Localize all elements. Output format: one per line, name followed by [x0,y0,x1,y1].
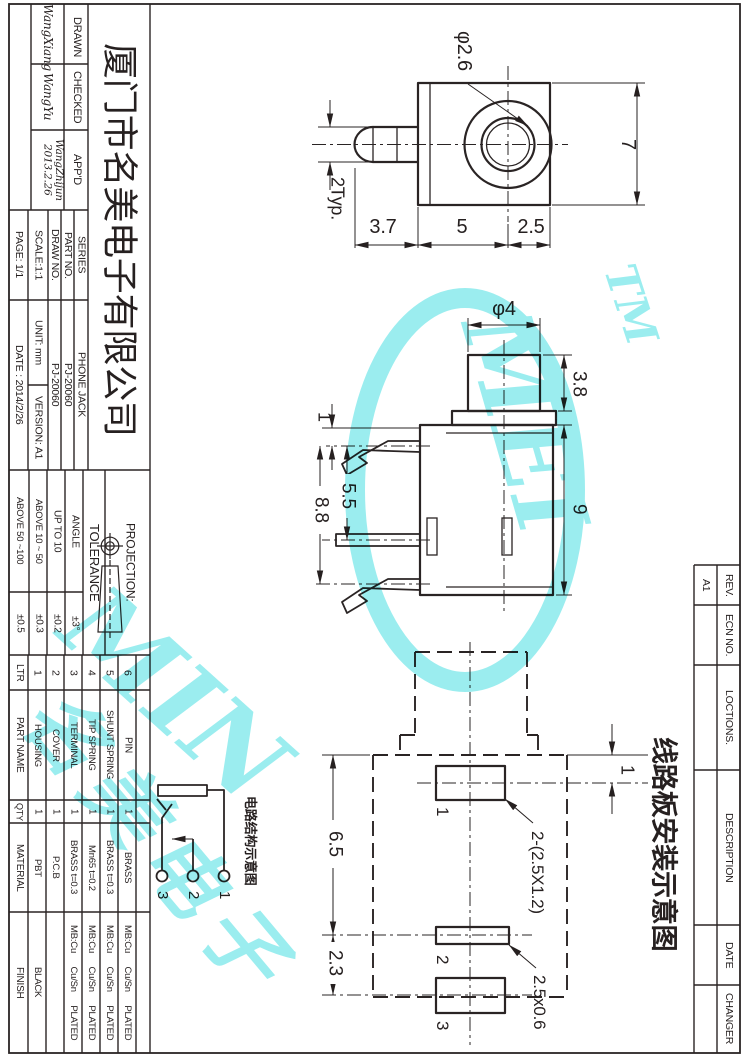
drawing-sheet: 厦门市名美电子有限公司 DRAWN CHECKED APP'D WangXian… [0,0,747,1060]
dim-pad2-size: 2.5x0.6 [526,958,552,1046]
dim-2-3: 2.3 [322,942,346,984]
tolerance-row-value: ±0.5 [9,592,29,655]
part-ltr: 4 [82,655,100,690]
tolerance-row-label: ABOVE 50 ~100 [9,470,29,592]
ecn-no-label: ECN NO. [717,605,740,665]
drawn-signature: WangXiang [31,10,64,64]
draw-no-value: PJ-20060 [48,300,61,470]
dim-8-8: 8.8 [308,486,332,534]
part-material: BRASS t=0.3 [64,823,82,912]
date-label: DATE [717,925,740,985]
pcb-view [322,642,648,1045]
dim-pin-typ: 2Typ. [326,168,348,230]
tolerance-row-value: ±3° [65,592,83,655]
tolerance-row-value: ±0.2 [47,592,65,655]
part-material: BRASS t=0.3 [100,823,118,912]
part-material: BRASS [118,823,136,912]
part-material: Mn65 t=0.2 [82,823,100,912]
part-name: COVER [46,690,64,800]
draw-no-label: DRAW NO. [48,210,61,300]
dim-slot-size: 2-(2.5X1.2) [524,812,550,932]
pad-label-2: 2 [432,948,452,972]
version-value: VERSION: A1 [28,385,48,470]
series-label: SERIES [74,210,88,300]
checked-label: CHECKED [64,64,88,130]
dim-pad1-offset: 1 [616,756,638,784]
rev-label: REV. [717,565,740,605]
tolerance-row-label: ANGLE [65,470,83,592]
parts-header-material: MATERIAL [9,823,28,912]
dim-hole-diameter: φ2.6 [449,20,477,82]
part-finish: BLACK [28,912,46,1053]
parts-header-finish: FINISH [9,912,28,1053]
scale-value: SCALE:1:1 [28,210,48,300]
dim-body-height: 7 [614,126,640,162]
drawn-label: DRAWN [64,10,88,64]
rev-value: A1 [694,565,717,605]
changer-label: CHANGER [717,985,740,1053]
parts-header-name: PART NAME [9,690,28,800]
part-name: SHUNT SPRING [100,690,118,800]
appd-signature-name: WangZhijun [53,130,64,210]
locations-label: LOCTIONS. [717,665,740,770]
part-ltr: 3 [64,655,82,690]
company-name: 厦门市名美电子有限公司 [88,10,150,470]
appd-label: APP'D [64,130,88,210]
part-material: P.C.B [46,823,64,912]
tolerance-header: TOLERANCE [83,470,105,655]
tolerance-row-value: ±0.3 [29,592,47,655]
unit-value: UNIT: mm [28,300,48,385]
part-name: TERMINAL [64,690,82,800]
appd-signature: WangZhijun 2013.2.26 [31,130,64,210]
part-qty: 1 [100,800,118,823]
dim-3-7: 3.7 [366,216,400,240]
part-name: PIN [118,690,136,800]
part-qty: 1 [64,800,82,823]
description-label: DESCRIPTION [717,770,740,925]
pad-label-3: 3 [432,1014,452,1038]
dim-2-5: 2.5 [514,216,548,240]
dim-5: 5 [452,216,472,240]
dim-lead-1: 1 [314,404,334,430]
checked-signature: WangYu [31,64,64,130]
dim-3-8: 3.8 [566,360,590,408]
part-finish: MB:Cu Cu/Sn PLATED [100,912,118,1053]
part-material: PBT [28,823,46,912]
part-name: HOUSING [28,690,46,800]
circuit-terminal-1: 1 [214,884,234,906]
dim-bushing-diameter: φ4 [483,298,525,322]
part-ltr: 2 [46,655,64,690]
date-value: DATE : 2014/2/26 [9,300,28,470]
tolerance-row-label: UP TO 10 [47,470,65,592]
pad-label-1: 1 [432,800,452,824]
circuit-schematic [157,785,230,882]
part-finish: MB:Cu Cu/Sn PLATED [118,912,136,1053]
part-ltr: 5 [100,655,118,690]
dim-9: 9 [566,494,590,524]
part-finish: MB:Cu Cu/Sn PLATED [82,912,100,1053]
part-ltr: 1 [28,655,46,690]
part-no-label: PART NO. [61,210,74,300]
tolerance-row-label: ABOVE 10 ~ 50 [29,470,47,592]
parts-header-qty: QTY [9,800,28,823]
part-ltr: 6 [118,655,136,690]
page-value: PAGE: 1/1 [9,210,28,300]
part-qty: 1 [82,800,100,823]
part-qty: 1 [28,800,46,823]
series-value: PHONE JACK [74,300,88,470]
part-finish: MB:Cu Cu/Sn PLATED [64,912,82,1053]
circuit-terminal-2: 2 [183,884,203,906]
pcb-view-title: 线路板安装示意图 [640,734,686,954]
part-qty: 1 [46,800,64,823]
circuit-title: 电路结构示意图 [240,792,260,890]
dim-5-5: 5.5 [336,474,358,518]
projection-label: PROJECTION: [118,472,142,652]
circuit-terminal-3: 3 [152,884,172,906]
part-qty: 1 [118,800,136,823]
appd-signature-date: 2013.2.26 [41,130,52,210]
side-view [312,318,572,615]
top-view [312,66,645,248]
dim-6-5: 6.5 [322,820,346,868]
part-name: TIP SPRING [82,690,100,800]
part-no-value: PJ-20060 [61,300,74,470]
part-finish [46,912,64,1053]
parts-header-ltr: LTR [9,655,28,690]
